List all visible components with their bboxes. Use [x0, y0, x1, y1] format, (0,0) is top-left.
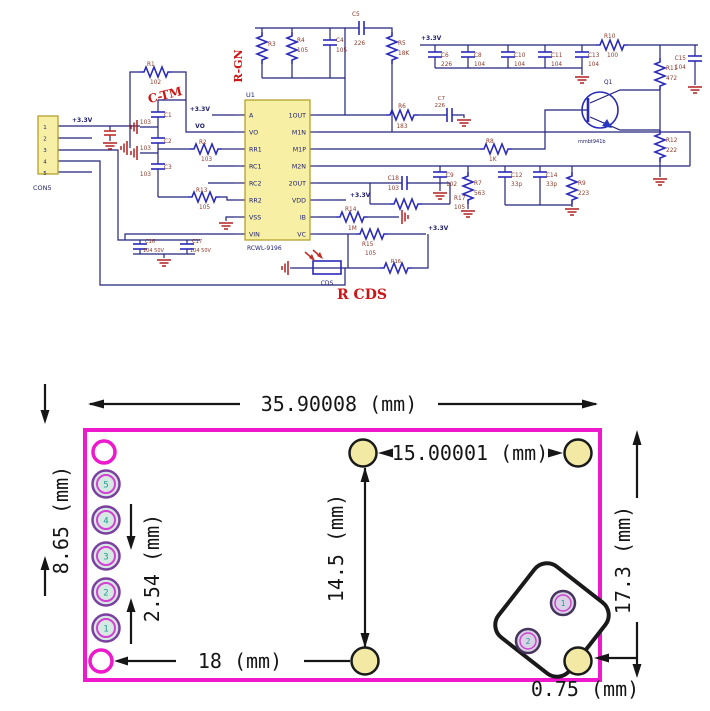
hole-top-right [565, 440, 592, 467]
wire [130, 72, 140, 148]
r5-ref-label: R5 [398, 41, 406, 47]
red_labels-rcds-label: R CDS [337, 287, 387, 303]
hole-top-left [93, 441, 115, 463]
c7-ref-label: C7 [438, 96, 446, 102]
ground-symbol [219, 223, 233, 229]
r7-val-label: 563 [474, 191, 485, 197]
c11-val-label: 104 [551, 62, 562, 68]
r4-val-label: 105 [297, 48, 308, 54]
c4-val-label: 105 [336, 48, 347, 54]
wire [412, 234, 428, 268]
c12-ref-label: C12 [511, 173, 523, 179]
r5-val-label: 18K [398, 51, 409, 57]
r8-ref-label: R8 [486, 139, 494, 145]
c15-val-label: 104 [675, 65, 686, 71]
left_pins-1-label: VO [249, 130, 258, 137]
r13-val-label: 105 [199, 205, 210, 211]
sensor-pad-number: 1 [561, 599, 566, 608]
pad-number: 5 [103, 481, 108, 491]
net_labels-vo-label: VO [195, 123, 205, 130]
screenshot-root: U1RCWL-9196CON5+3.3V+3.3V+3.3V+3.3V+3.3V… [0, 0, 710, 711]
hole-bottom-left [90, 650, 112, 672]
wire [226, 217, 234, 221]
right_pins-5-label: VDD [292, 198, 306, 205]
r6-ref-label: R6 [398, 104, 406, 110]
resistor-symbol [140, 67, 172, 77]
arrow-down-icon [41, 410, 50, 424]
c18-val-label: 103 [388, 186, 399, 192]
arrow-left-icon [88, 400, 104, 409]
dim-hole-span-label: 15.00001 (mm) [392, 441, 549, 465]
pins-0-label: 1 [43, 125, 47, 131]
left_pins-2-label: RR1 [249, 147, 262, 154]
circuit-schematic: U1RCWL-9196CON5+3.3V+3.3V+3.3V+3.3V+3.3V… [0, 0, 710, 340]
dim-width-label: 35.90008 (mm) [261, 392, 418, 416]
r12-ref-label: R12 [666, 138, 678, 144]
light-arrow-icon [317, 252, 323, 259]
pins-2-label: 3 [43, 148, 47, 154]
r15-val-label: 105 [365, 251, 376, 257]
right_pins-4-label: 2OUT [289, 181, 307, 188]
c1-ref-label: C1 [164, 113, 172, 119]
left_pins-6-label: VSS [249, 215, 261, 222]
c2-val-label: 103 [140, 146, 151, 152]
c8-val-label: 104 [474, 62, 485, 68]
resistor-symbol [257, 32, 267, 64]
c5-val-label: 226 [354, 41, 365, 47]
arrow-right-icon [582, 400, 598, 409]
net_labels-v33-label: +3.3V [350, 192, 371, 199]
ground-symbol [157, 260, 171, 266]
resistor-symbol [390, 199, 422, 209]
c13-val-label: 104 [588, 62, 599, 68]
r10-ref-label: R10 [604, 34, 616, 40]
hole-bottom-right [565, 648, 592, 675]
r6-val-label: 183 [396, 124, 407, 130]
r9-ref-label: R9 [578, 181, 586, 187]
c18-ref-label: C18 [388, 176, 400, 182]
dim-pitch-label: 2.54 (mm) [140, 514, 164, 622]
r12-val-label: 222 [666, 148, 677, 154]
hole-top-mid [350, 440, 377, 467]
r10-val-label: 100 [607, 53, 618, 59]
c1-val-label: 103 [140, 120, 151, 126]
resistor-symbol [567, 172, 577, 204]
net_labels-v33-label: +3.3V [190, 106, 211, 113]
net_labels-v33-label: +3.3V [428, 225, 449, 232]
r2-val-label: 103 [201, 157, 212, 163]
c16-ref-label: C16 [145, 239, 155, 245]
r14-val-label: 1M [348, 226, 357, 232]
left_pins-7-label: VIN [249, 232, 260, 239]
c2-ref-label: C2 [164, 139, 172, 145]
c3-ref-label: C3 [164, 165, 172, 171]
c7-val-label: 226 [435, 103, 446, 109]
arrow-down-icon [633, 664, 642, 678]
dim-bottom-label: 18 (mm) [198, 649, 282, 673]
dim-width: 35.90008 (mm) [88, 392, 598, 416]
ground-symbol [461, 211, 475, 217]
pins-3-label: 4 [43, 160, 47, 166]
resistor-symbol [387, 32, 397, 64]
r8-val-label: 1K [489, 157, 497, 163]
resistor-symbol [596, 40, 628, 50]
connector-ref-label: CON5 [33, 184, 52, 192]
c9-ref-label: C9 [446, 173, 454, 179]
c3-val-label: 103 [140, 172, 151, 178]
r1-ref-label: R1 [147, 62, 155, 68]
pad-number: 4 [103, 517, 108, 527]
c4-ref-label: C4 [336, 38, 344, 44]
c10-val-label: 104 [514, 62, 525, 68]
c13-ref-label: C13 [588, 53, 600, 59]
pins-1-label: 2 [43, 137, 47, 143]
dim-mid-label: 14.5 (mm) [324, 494, 348, 602]
r15-ref-label: R15 [362, 242, 374, 248]
sensor-pad-number: 2 [526, 637, 531, 646]
left_pins-0-label: A [249, 113, 254, 120]
ground-symbol [575, 77, 589, 83]
r1-val-label: 102 [150, 80, 161, 86]
pcb-dimension-drawing: 54321 12 35.90008 (mm) 8.65 (mm) 2.54 (m… [0, 370, 710, 711]
light-arrow-icon [309, 254, 315, 261]
left_pins-3-label: RC1 [249, 164, 261, 171]
hole-bottom-mid [352, 648, 379, 675]
c17-val-label: 104 50V [190, 248, 211, 254]
wire [58, 150, 200, 240]
r11-val-label: 472 [666, 76, 677, 82]
ground-symbol [402, 210, 408, 224]
r17-val-label: 105 [454, 205, 465, 211]
red_labels-rgn-label: R-GN [232, 49, 245, 82]
dim-corner-label: 0.75 (mm) [531, 677, 639, 701]
right_pins-7-label: VC [297, 232, 306, 239]
r4-ref-label: R4 [297, 38, 305, 44]
r7-ref-label: R7 [474, 181, 482, 187]
ic-ref-label: U1 [246, 91, 255, 99]
resistor-symbol [336, 212, 368, 222]
connector-body [38, 116, 58, 174]
right_pins-2-label: M1P [293, 147, 306, 154]
c6-val-label: 226 [441, 62, 452, 68]
ground-symbol [282, 261, 288, 275]
ground-symbol [565, 209, 579, 215]
pad-number: 1 [103, 625, 108, 635]
wire [220, 197, 234, 200]
ground-symbol [131, 146, 137, 160]
q1-val-label: mmbt941b [578, 139, 606, 145]
ground-symbol [103, 143, 117, 149]
dim-right-label: 17.3 (mm) [611, 506, 635, 614]
r14-ref-label: R14 [345, 207, 357, 213]
r2-ref-label: R2 [199, 140, 207, 146]
dim-hole-span: 15.00001 (mm) [378, 441, 563, 465]
r3-ref-label: R3 [268, 42, 276, 48]
c5-ref-label: C5 [352, 12, 360, 18]
c11-ref-label: C11 [551, 53, 563, 59]
ground-symbol [433, 193, 447, 199]
cds-ref-label: CDS [321, 280, 334, 287]
dim-left-edge: 8.65 (mm) [41, 384, 74, 596]
wire [125, 234, 234, 240]
net_labels-v33-label: +3.3V [421, 35, 442, 42]
left_pins-5-label: RR2 [249, 198, 262, 205]
c6-ref-label: C6 [441, 53, 449, 59]
ground-symbol [653, 179, 667, 185]
right_pins-6-label: IB [300, 215, 306, 222]
ground-symbol [457, 120, 471, 126]
r17-ref-label: R17 [454, 196, 466, 202]
c10-ref-label: C10 [514, 53, 526, 59]
c8-ref-label: C8 [474, 53, 482, 59]
right_pins-0-label: 1OUT [289, 113, 307, 120]
net_labels-v33-label: +3.3V [72, 117, 93, 124]
left_pins-4-label: RC2 [249, 181, 261, 188]
ic-part-label: RCWL-9196 [247, 245, 282, 252]
schematic-layer: U1RCWL-9196CON5+3.3V+3.3V+3.3V+3.3V+3.3V… [33, 12, 702, 303]
c14-val-label: 33p [546, 182, 557, 188]
c16-val-label: 104 50V [143, 248, 164, 254]
pins-4-label: 5 [43, 171, 47, 177]
right_pins-1-label: M1N [292, 130, 306, 137]
q1-ref-label: Q1 [604, 80, 613, 86]
wire [364, 28, 392, 32]
r16-ref-label: R16 [391, 259, 401, 265]
ground-symbol [131, 120, 137, 134]
pad-number: 2 [103, 589, 108, 599]
c17-ref-label: C17 [192, 239, 202, 245]
c9-val-label: 102 [446, 182, 457, 188]
resistor-symbol [480, 144, 512, 154]
right_pins-3-label: M2N [292, 164, 306, 171]
c15-ref-label: C15 [675, 56, 687, 62]
resistor-symbol [655, 58, 665, 90]
red_labels-ctm-label: C-TM [146, 84, 183, 106]
wire [512, 110, 587, 149]
resistor-symbol [655, 130, 665, 162]
r13-ref-label: R13 [196, 188, 208, 194]
resistor-symbol [287, 32, 297, 64]
dim-left-label: 8.65 (mm) [49, 466, 73, 574]
arrow-up-icon [633, 430, 642, 445]
ground-symbol [688, 87, 702, 93]
r9-val-label: 223 [578, 191, 589, 197]
wire [452, 115, 464, 118]
resistor-symbol [356, 229, 388, 239]
resistor-symbol [386, 110, 418, 120]
pad-number: 3 [103, 553, 108, 563]
c14-ref-label: C14 [546, 173, 558, 179]
ground-symbol [121, 141, 127, 155]
c12-val-label: 33p [511, 182, 522, 188]
